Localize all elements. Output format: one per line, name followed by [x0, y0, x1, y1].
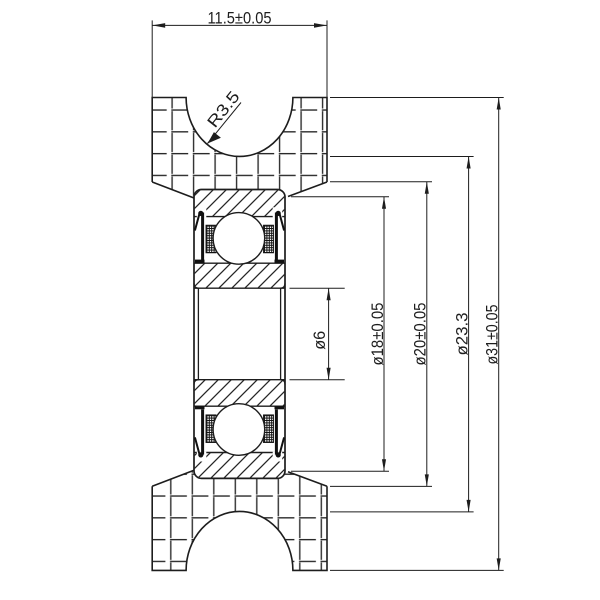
svg-text:ø23.3: ø23.3 — [453, 313, 471, 356]
svg-text:ø18±0.05: ø18±0.05 — [369, 303, 387, 366]
svg-text:ø20±0.05: ø20±0.05 — [412, 303, 430, 366]
svg-text:11.5±0.05: 11.5±0.05 — [208, 9, 272, 27]
svg-text:ø31±0.05: ø31±0.05 — [484, 305, 502, 365]
svg-text:ø6: ø6 — [311, 331, 329, 350]
